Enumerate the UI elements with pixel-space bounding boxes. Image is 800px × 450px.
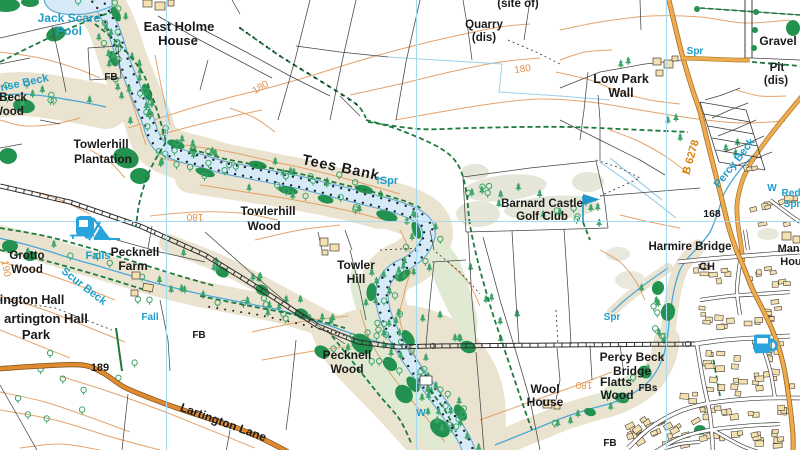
svg-text:168: 168 <box>703 208 721 220</box>
svg-text:180: 180 <box>186 211 203 222</box>
svg-text:Quarry: Quarry <box>465 19 503 31</box>
svg-text:(dis): (dis) <box>764 75 788 87</box>
svg-text:W: W <box>416 408 426 419</box>
svg-text:Golf Club: Golf Club <box>516 211 568 223</box>
svg-text:Pecknell: Pecknell <box>323 348 372 362</box>
svg-text:Percy Beck: Percy Beck <box>600 350 665 364</box>
svg-text:Wool: Wool <box>530 382 559 396</box>
svg-text:Wood: Wood <box>0 106 24 118</box>
svg-text:Plantation: Plantation <box>74 152 132 166</box>
svg-text:(site of): (site of) <box>497 0 539 10</box>
svg-text:180: 180 <box>575 379 592 390</box>
svg-text:FBs: FBs <box>639 383 658 394</box>
svg-text:Farm: Farm <box>118 259 147 273</box>
svg-text:CH: CH <box>699 261 715 273</box>
svg-text:Wood: Wood <box>600 388 633 402</box>
svg-text:Spr: Spr <box>380 175 399 187</box>
svg-text:artington Hall: artington Hall <box>4 311 88 326</box>
svg-text:Spr: Spr <box>687 46 704 57</box>
svg-text:Pit: Pit <box>770 62 785 74</box>
svg-text:Park: Park <box>22 327 51 342</box>
svg-text:Pool: Pool <box>56 24 82 38</box>
svg-text:House: House <box>527 395 564 409</box>
svg-text:Barnard Castle: Barnard Castle <box>501 198 583 210</box>
svg-text:Wall: Wall <box>608 86 633 100</box>
svg-text:Towlerhill: Towlerhill <box>73 137 128 151</box>
svg-text:Grotto: Grotto <box>9 250 44 262</box>
svg-text:Fall: Fall <box>141 312 158 323</box>
svg-text:Flatts: Flatts <box>600 375 632 389</box>
svg-text:Spr: Spr <box>784 199 800 210</box>
svg-text:Falls: Falls <box>85 250 110 262</box>
svg-text:Hill: Hill <box>347 272 366 286</box>
svg-text:Pecknell: Pecknell <box>111 245 160 259</box>
svg-text:Wood: Wood <box>11 264 43 276</box>
svg-text:189: 189 <box>91 362 109 374</box>
svg-text:Towler: Towler <box>337 258 375 272</box>
svg-text:Mano: Mano <box>778 243 800 255</box>
svg-text:FB: FB <box>603 438 616 449</box>
svg-text:Low Park: Low Park <box>593 72 649 86</box>
svg-text:Gravel: Gravel <box>759 34 796 48</box>
svg-text:Jack Scare: Jack Scare <box>38 11 101 25</box>
svg-text:W: W <box>767 183 777 194</box>
svg-text:190: 190 <box>0 259 12 278</box>
svg-text:FB: FB <box>192 330 205 341</box>
svg-text:ington Hall: ington Hall <box>0 293 64 307</box>
svg-text:Harmire Bridge: Harmire Bridge <box>648 241 731 253</box>
svg-text:Red: Red <box>782 188 800 199</box>
svg-text:East Holme: East Holme <box>144 19 215 34</box>
svg-text:FB: FB <box>104 72 117 83</box>
svg-text:(dis): (dis) <box>472 32 496 44</box>
svg-text:Beck: Beck <box>0 92 27 104</box>
svg-text:Towlerhill: Towlerhill <box>240 204 295 218</box>
svg-text:House: House <box>158 33 198 48</box>
svg-text:Spr: Spr <box>604 312 621 323</box>
svg-text:Wood: Wood <box>247 219 280 233</box>
svg-text:Wood: Wood <box>330 362 363 376</box>
svg-text:Hous: Hous <box>780 256 800 268</box>
